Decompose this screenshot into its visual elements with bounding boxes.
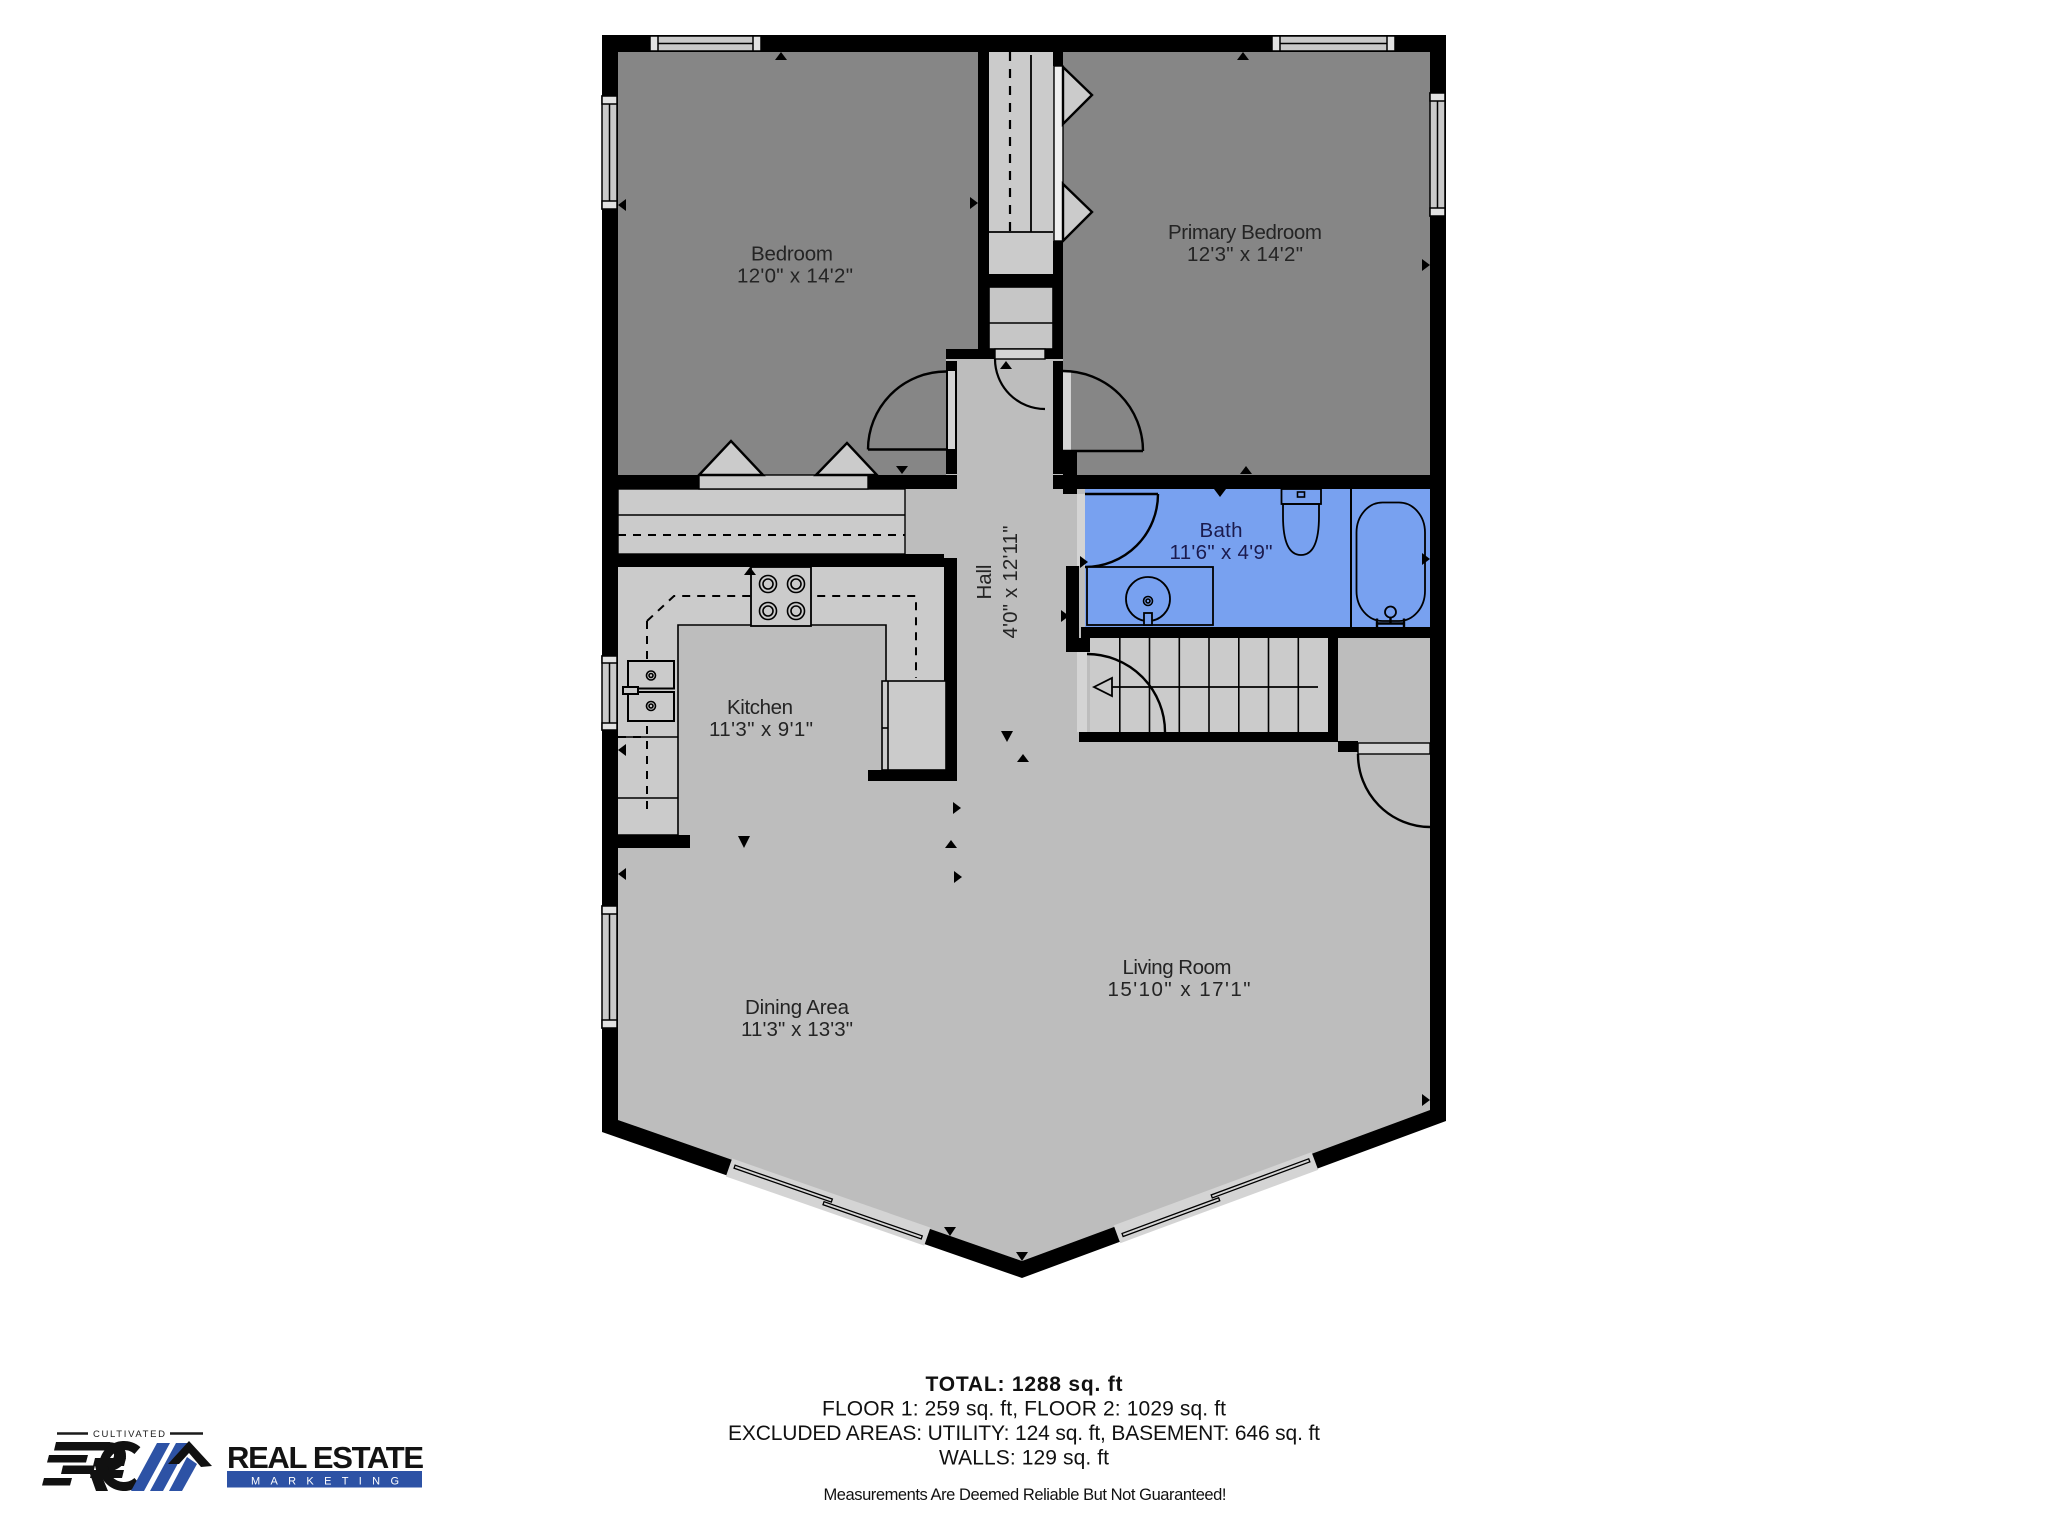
svg-text:Living Room: Living Room [1123,956,1232,979]
svg-text:12'0" x 14'2": 12'0" x 14'2" [737,265,853,288]
svg-text:Dining Area: Dining Area [745,996,850,1019]
svg-text:FLOOR 1: 259 sq. ft, FLOOR 2:: FLOOR 1: 259 sq. ft, FLOOR 2: 1029 sq. f… [822,1398,1226,1421]
svg-text:11'6" x 4'9": 11'6" x 4'9" [1170,541,1273,564]
svg-text:CULTIVATED: CULTIVATED [93,1429,165,1440]
svg-text:11'3" x 9'1": 11'3" x 9'1" [709,718,813,741]
svg-text:Bath: Bath [1200,519,1243,542]
svg-text:Primary Bedroom: Primary Bedroom [1168,221,1322,244]
svg-text:Kitchen: Kitchen [727,696,793,719]
svg-text:EXCLUDED AREAS: UTILITY: 124 s: EXCLUDED AREAS: UTILITY: 124 sq. ft, BAS… [728,1422,1320,1445]
svg-text:Measurements Are Deemed Reliab: Measurements Are Deemed Reliable But Not… [824,1486,1227,1504]
svg-text:MARKETING: MARKETING [251,1476,399,1488]
svg-text:REAL ESTATE: REAL ESTATE [227,1440,424,1475]
svg-text:TOTAL: 1288 sq. ft: TOTAL: 1288 sq. ft [926,1373,1123,1396]
svg-text:Bedroom: Bedroom [751,243,833,266]
svg-text:11'3" x 13'3": 11'3" x 13'3" [741,1018,853,1041]
svg-text:WALLS: 129 sq. ft: WALLS: 129 sq. ft [939,1447,1109,1470]
svg-text:12'3" x 14'2": 12'3" x 14'2" [1187,243,1303,266]
